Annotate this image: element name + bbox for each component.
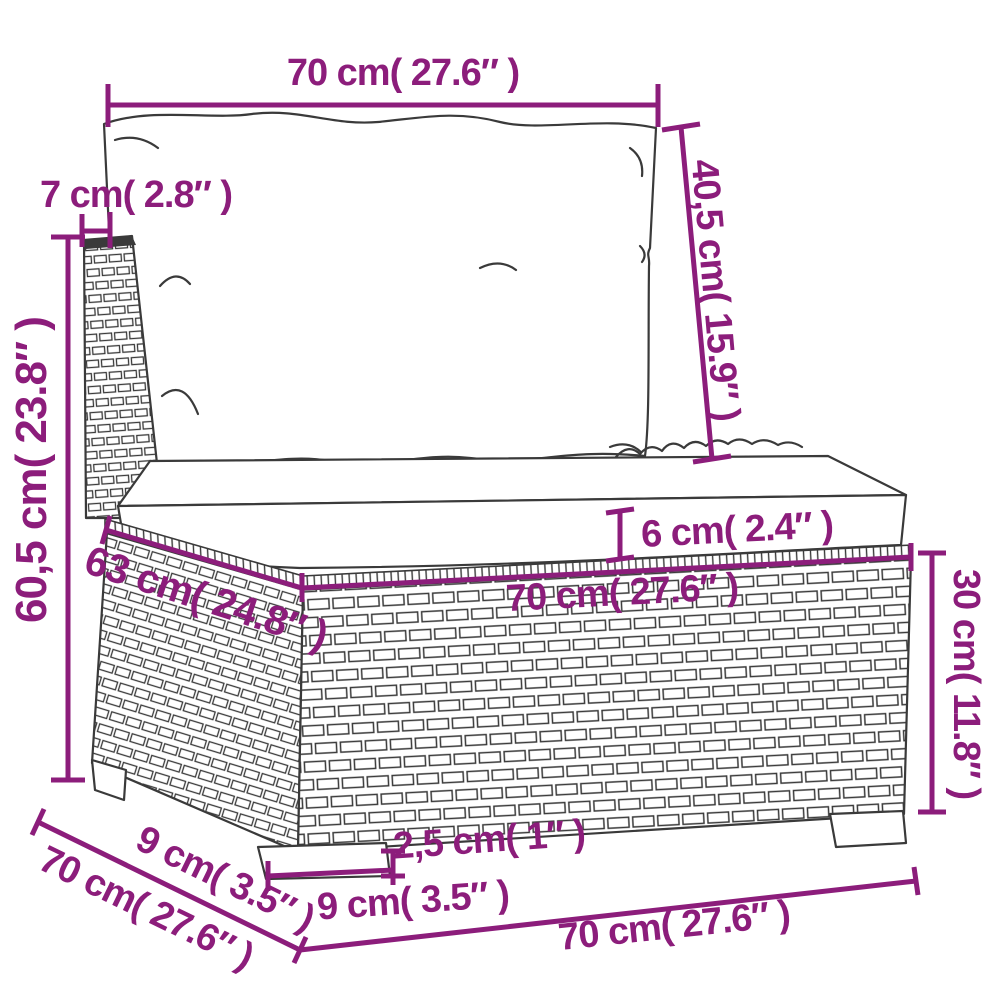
dim-top-width-label: 70 cm( 27.6″ ) [287,54,519,92]
back-cushion [104,113,656,508]
dim-overall-height-line [51,237,85,780]
dim-back-post-width-label: 7 cm( 2.8″ ) [40,176,232,214]
diagram-canvas: 70 cm( 27.6″ ) 7 cm( 2.8″ ) 40,5 cm( 15.… [0,0,1000,1000]
dim-base-height-line [918,553,946,812]
dim-seat-cushion-thickness-label: 6 cm( 2.4″ ) [640,506,834,554]
front-right-leg [830,811,906,847]
dim-base-height-label: 30 cm( 11.8″ ) [947,569,985,799]
dim-overall-height-label: 60,5 cm( 23.8″ ) [10,317,54,623]
